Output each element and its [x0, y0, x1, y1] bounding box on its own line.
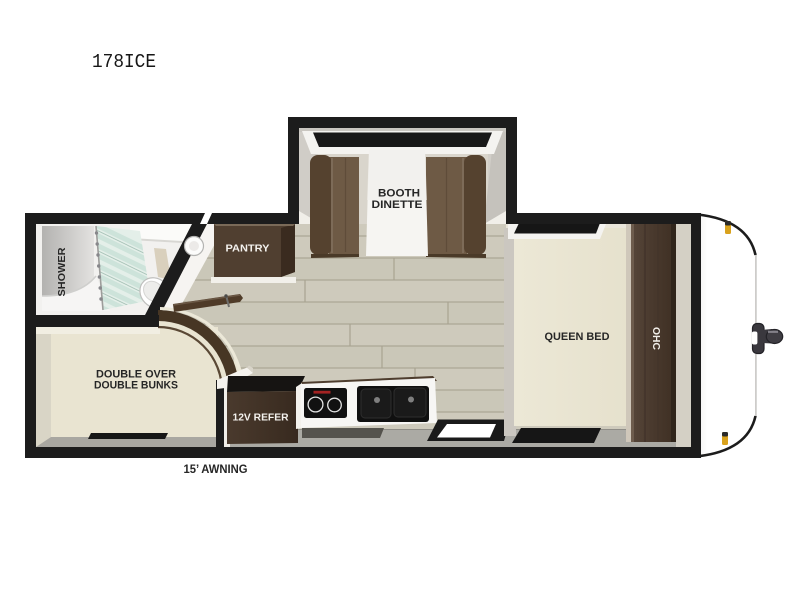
svg-text:PANTRY: PANTRY [226, 243, 270, 255]
svg-text:OHC: OHC [650, 327, 661, 350]
svg-text:QUEEN BED: QUEEN BED [545, 331, 610, 343]
svg-text:12V REFER: 12V REFER [233, 413, 290, 424]
svg-text:BOOTH: BOOTH [378, 188, 420, 200]
svg-text:15’ AWNING: 15’ AWNING [184, 464, 248, 476]
svg-text:178ICE: 178ICE [92, 51, 156, 73]
svg-text:SHOWER: SHOWER [56, 247, 68, 296]
svg-text:DOUBLE BUNKS: DOUBLE BUNKS [94, 380, 178, 392]
svg-text:DINETTE: DINETTE [372, 199, 423, 211]
